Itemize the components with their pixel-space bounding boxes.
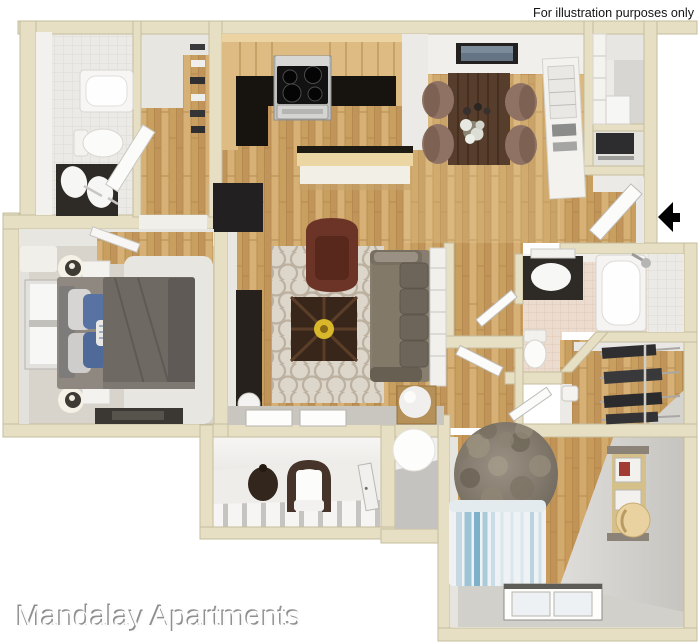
svg-text:For illustration purposes only: For illustration purposes only	[533, 6, 695, 20]
svg-text:Mandalay Apartments: Mandalay Apartments	[17, 600, 301, 633]
